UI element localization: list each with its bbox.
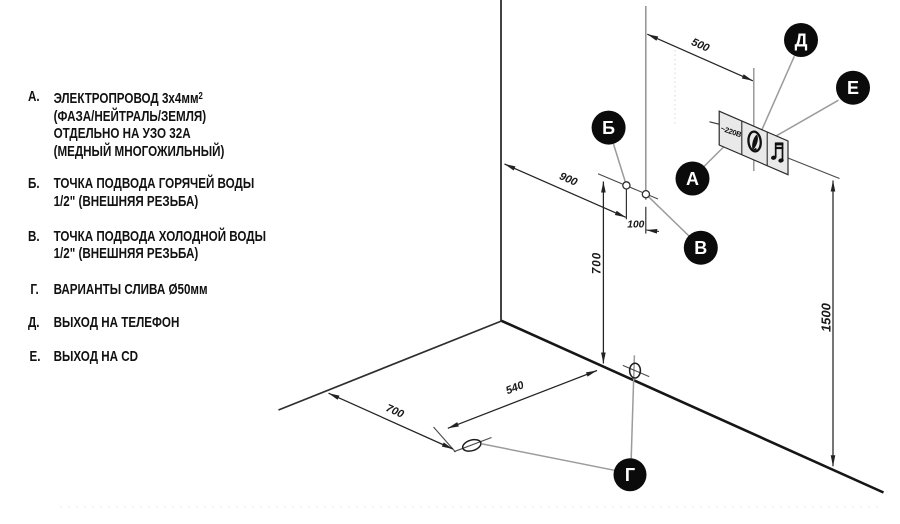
svg-text:540: 540 (504, 379, 526, 397)
svg-text:700: 700 (591, 252, 603, 274)
svg-text:700: 700 (384, 402, 406, 421)
svg-text:Б: Б (602, 118, 615, 138)
svg-text:В: В (694, 238, 707, 258)
svg-text:А: А (686, 169, 699, 189)
svg-text:900: 900 (557, 170, 579, 189)
svg-text:100: 100 (627, 219, 644, 230)
svg-text:Г: Г (625, 465, 635, 485)
svg-text:1500: 1500 (819, 302, 834, 332)
svg-text:500: 500 (689, 36, 711, 55)
svg-text:Д: Д (795, 30, 808, 50)
svg-text:Е: Е (847, 78, 859, 98)
